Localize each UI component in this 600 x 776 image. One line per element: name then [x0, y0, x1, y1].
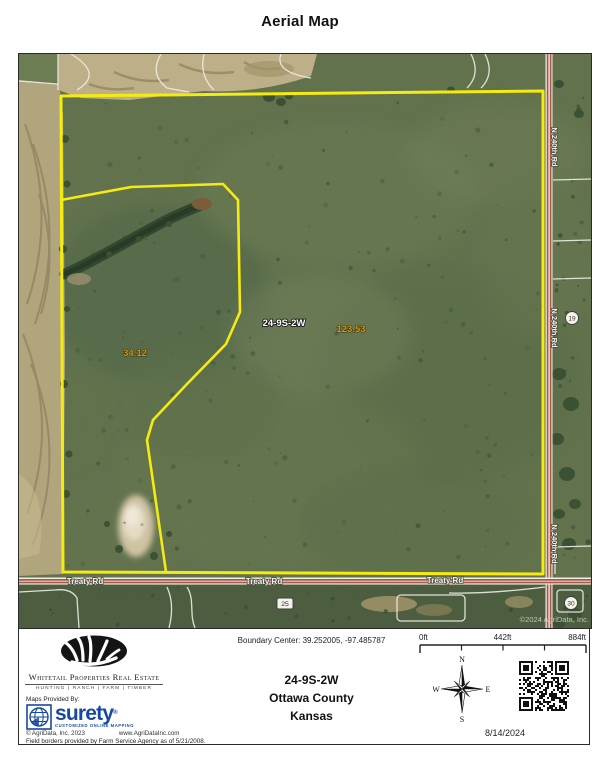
pond-brown: [192, 198, 212, 210]
county-name: Ottawa County: [209, 691, 414, 705]
aerial-imagery: 24-9S-2W 123.53 34.12 Treaty Rd Treaty R…: [19, 54, 591, 628]
compass-west-label: W: [433, 685, 440, 694]
surety-globe-icon: [26, 704, 52, 730]
whitetail-antler-logo-icon: [19, 631, 169, 673]
state-name: Kansas: [209, 709, 414, 723]
brand-name: Whitetail Properties Real Estate: [19, 672, 169, 682]
compass-south-label: S: [460, 715, 464, 724]
section-marker-30: 30: [567, 601, 575, 608]
scale-bar: [419, 644, 587, 654]
map-footer: Whitetail Properties Real Estate HUNTING…: [18, 628, 590, 745]
brand-divider: [25, 684, 163, 685]
surety-registered-mark: ®: [113, 710, 117, 716]
road-label-treaty-center: Treaty Rd: [246, 577, 283, 586]
road-label-treaty-west: Treaty Rd: [67, 577, 104, 586]
road-treaty: [19, 580, 591, 583]
footer-location-block: Boundary Center: 39.252005, -97.485787 2…: [209, 629, 414, 746]
field-borders-note: Field borders provided by Farm Service A…: [26, 738, 206, 745]
road-label-n240th-north: N 240th Rd: [550, 127, 559, 167]
footer-tools-block: 0ft 442ft 884ft: [417, 629, 589, 746]
pond-tan: [118, 495, 154, 557]
scale-max: 884ft: [568, 633, 586, 642]
road-label-n240th-mid: N 240th Rd: [550, 308, 559, 348]
qr-code: [519, 661, 569, 711]
compass-north-label: N: [459, 655, 465, 664]
road-label-n240th-south: N 240th Rd: [550, 524, 559, 564]
section-marker-25: 25: [281, 601, 289, 608]
road-label-treaty-east: Treaty Rd: [427, 576, 464, 585]
compass-east-label: E: [486, 685, 491, 694]
page-title: Aerial Map: [0, 13, 600, 30]
township-section: 24-9S-2W: [209, 673, 414, 687]
acreage-label-west: 34.12: [123, 348, 147, 359]
surety-tagline: CUSTOMIZED ONLINE MAPPING: [55, 723, 134, 728]
map-date: 8/14/2024: [435, 728, 575, 738]
aerial-map: 24-9S-2W 123.53 34.12 Treaty Rd Treaty R…: [18, 53, 592, 629]
footer-brand-block: Whitetail Properties Real Estate HUNTING…: [19, 629, 234, 746]
surety-wordmark: surety®: [55, 704, 117, 723]
compass-rose-icon: N S E W: [433, 654, 491, 724]
agridata-credit: © AgriData, Inc. 2023www.AgriDataInc.com: [26, 730, 179, 737]
boundary-center-coords: Boundary Center: 39.252005, -97.485787: [209, 636, 414, 645]
aerial-map-page: Aerial Map: [0, 0, 600, 776]
agridata-copyright: © AgriData, Inc. 2023: [26, 730, 85, 737]
imagery-watermark: ©2024 AgriData, Inc.: [520, 615, 589, 624]
section-marker-19: 19: [568, 316, 576, 323]
acreage-label-main: 123.53: [336, 324, 365, 335]
brand-tagline: HUNTING | RANCH | FARM | TIMBER: [19, 686, 169, 691]
agridata-url: www.AgriDataInc.com: [119, 730, 180, 737]
section-label: 24-9S-2W: [263, 318, 306, 329]
scale-mid: 442ft: [419, 633, 586, 642]
